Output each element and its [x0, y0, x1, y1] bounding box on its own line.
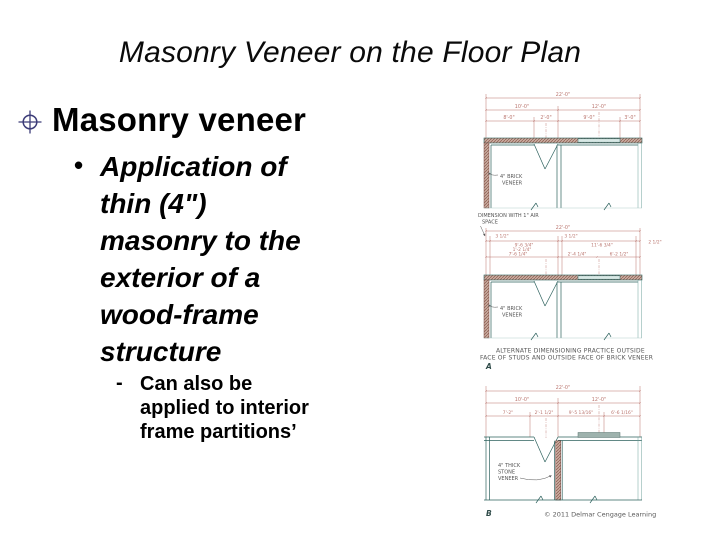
drawing-label-b: B [486, 509, 492, 518]
bullet2-line: wood-frame [100, 296, 360, 333]
break-marks [536, 496, 597, 503]
dim-label: 2 1/2" [648, 240, 661, 246]
dim-label: 2'-1 1/2" [535, 410, 554, 416]
veneer-note: STONE [498, 470, 515, 476]
dim-label: 2'-4 1/4" [568, 252, 587, 258]
drawing-a: DIMENSION WITH 1" AIR SPACE 22'-0" 3 1/2… [478, 213, 662, 371]
drawing-top: 22'-0" 10'-0" 12'-0" 8'-0" 2'-0" 9'-0" 3… [484, 92, 642, 210]
dim-label: 7'-2" [503, 410, 513, 416]
dim-label: 9'-0" [583, 115, 594, 121]
bullet2-marker: • [74, 150, 83, 181]
dim-label: 22'-0" [556, 225, 570, 231]
floor-plan-figure: 22'-0" 10'-0" 12'-0" 8'-0" 2'-0" 9'-0" 3… [478, 86, 680, 538]
bullet3-line: Can also be [140, 372, 360, 396]
bullet2-line: exterior of a [100, 259, 360, 296]
veneer-note: VENEER [502, 181, 523, 187]
extension-lines [486, 228, 640, 275]
dim-label: 9'-5 13/16" [569, 410, 593, 416]
dim-label: 6'-6 1/16" [611, 410, 633, 416]
window [578, 139, 620, 142]
leader-arrow [489, 173, 499, 176]
bullet3-line: frame partitions’ [140, 420, 360, 444]
caption: FACE OF STUDS AND OUTSIDE FACE OF BRICK … [480, 355, 653, 362]
bullet3-line: applied to interior [140, 396, 360, 420]
bullet-level1: Masonry veneer [16, 101, 306, 139]
dim-label: 10'-0" [515, 397, 529, 403]
dim-label: 6'-2 1/2" [610, 252, 629, 258]
veneer-note: 4" BRICK [500, 174, 523, 180]
copyright-text: © 2011 Delmar Cengage Learning [544, 511, 656, 519]
door-swing [534, 281, 558, 306]
break-marks [531, 203, 611, 210]
partition-wall [557, 282, 561, 338]
leader-arrow [489, 305, 499, 308]
drawing-label-a: A [485, 362, 492, 371]
dim-label: 3 1/2" [564, 234, 577, 240]
page-title: Masonry Veneer on the Floor Plan [0, 36, 700, 70]
dim-label: 22'-0" [556, 385, 570, 391]
veneer-note: 4" THICK [498, 463, 521, 469]
brick-veneer-wall-left [484, 143, 489, 208]
dim-label: 12'-0" [592, 104, 606, 110]
bullet1-text: Masonry veneer [52, 101, 306, 139]
dim-label: 10'-0" [515, 104, 529, 110]
dim-label: 11'-6 3/4" [591, 243, 613, 249]
dim-label: 2'-0" [540, 115, 551, 121]
dim-label: 7'-6 1/4" [509, 252, 528, 258]
drawing-b: 22'-0" 10'-0" 12'-0" 7'-2" 2'-1 1/2" 9'-… [484, 385, 656, 519]
window [578, 433, 620, 438]
bullet2-line: masonry to the [100, 222, 360, 259]
dim-label: 3'-0" [624, 115, 635, 121]
veneer-note: VENEER [502, 313, 523, 319]
bullet2-line: Application of [100, 148, 360, 185]
door-swing [534, 144, 558, 169]
right-wall [638, 143, 642, 208]
brick-veneer-wall-left [484, 280, 489, 338]
dim-label: 12'-0" [592, 397, 606, 403]
air-space-note: DIMENSION WITH 1" AIR [478, 213, 539, 219]
dim-label: 8'-0" [503, 115, 514, 121]
caption: ALTERNATE DIMENSIONING PRACTICE OUTSIDE [496, 348, 645, 355]
partition-wall [557, 145, 561, 208]
right-wall [638, 280, 642, 338]
leader-arrow [520, 476, 552, 481]
right-wall [638, 437, 641, 500]
veneer-note: VENEER [498, 476, 519, 482]
bullet2-line: structure [100, 333, 360, 370]
window [578, 276, 620, 279]
bullet2-line: thin (4") [100, 185, 360, 222]
bullet3-marker: - [116, 372, 123, 395]
break-marks [531, 333, 611, 340]
leader-arrow [481, 226, 486, 236]
bullet-level2: Application of thin (4") masonry to the … [100, 148, 360, 370]
stone-veneer-partition [556, 441, 561, 500]
bullet-level3: Can also be applied to interior frame pa… [140, 372, 360, 444]
left-wall [486, 437, 489, 500]
veneer-note: 4" BRICK [500, 306, 523, 312]
air-space-note: SPACE [482, 220, 498, 226]
dim-label: 22'-0" [556, 92, 570, 98]
crosshair-bullet-icon [16, 108, 44, 136]
dim-label: 3 1/2" [495, 234, 508, 240]
